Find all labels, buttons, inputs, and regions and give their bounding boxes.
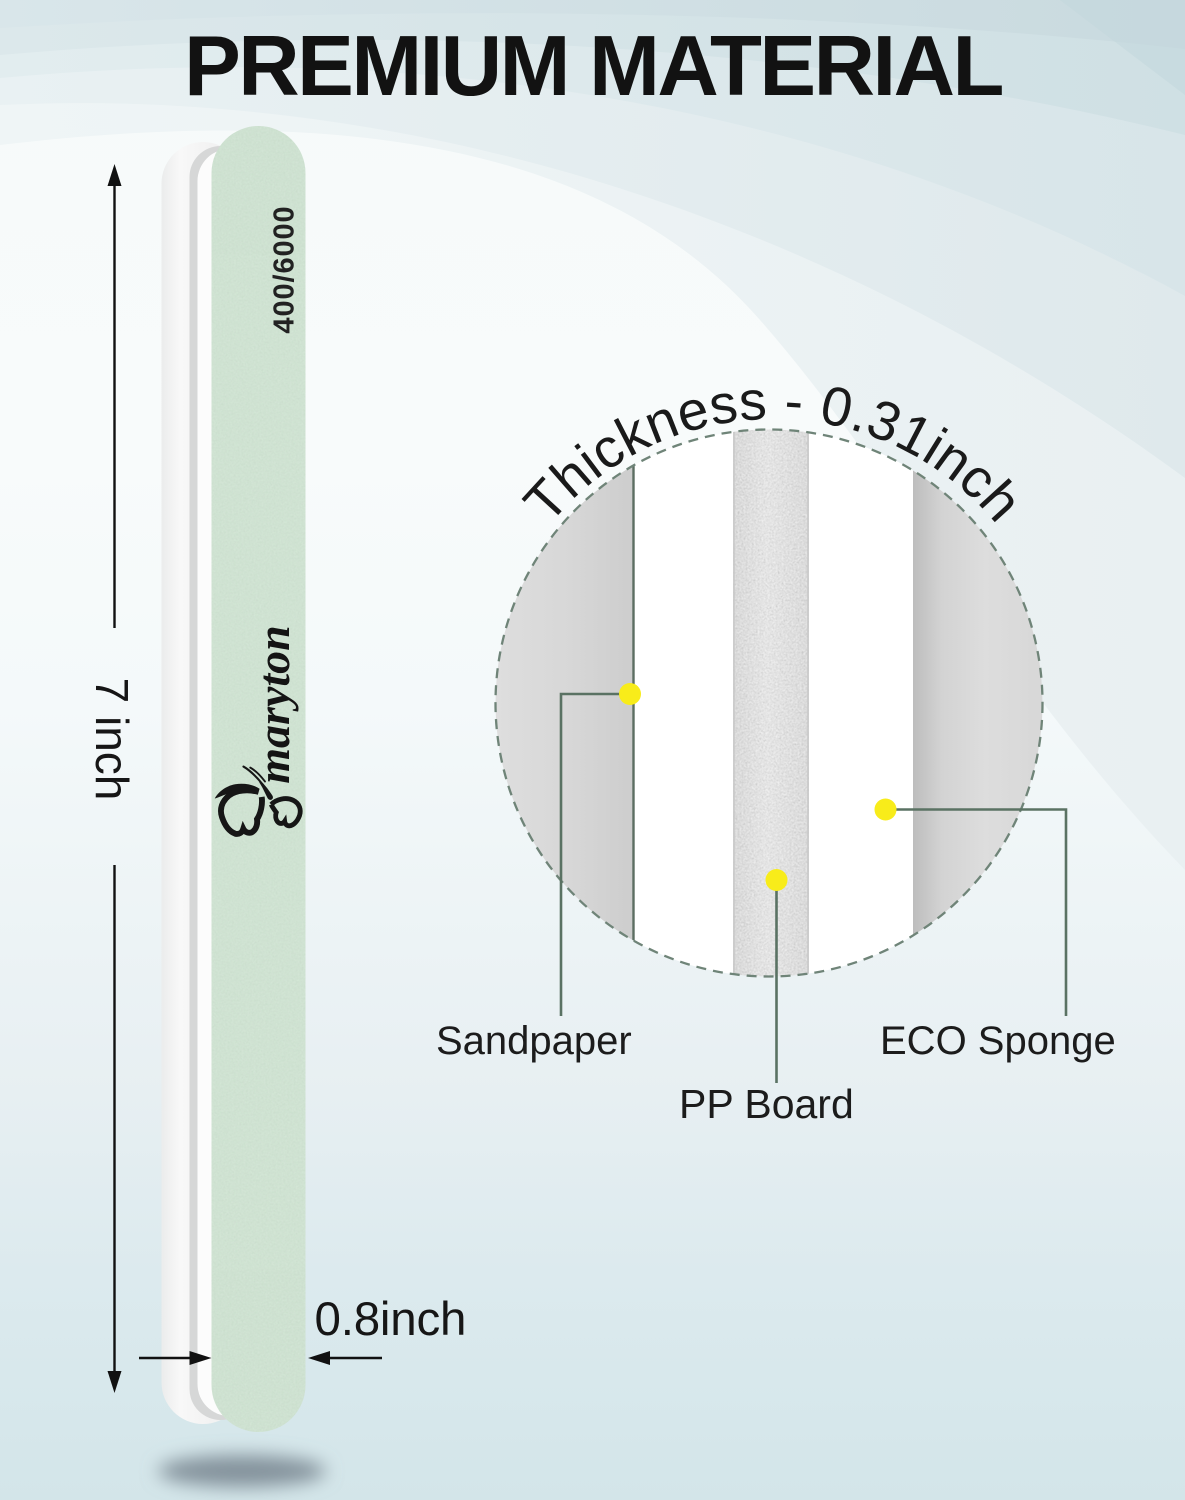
svg-text:maryton: maryton — [248, 625, 299, 783]
svg-text:7 inch: 7 inch — [86, 678, 138, 801]
svg-text:0.8inch: 0.8inch — [315, 1293, 467, 1346]
svg-text:PP Board: PP Board — [679, 1081, 854, 1127]
svg-text:ECO Sponge: ECO Sponge — [880, 1019, 1116, 1063]
svg-text:PREMIUM MATERIAL: PREMIUM MATERIAL — [184, 19, 1002, 114]
svg-text:Sandpaper: Sandpaper — [436, 1019, 632, 1063]
svg-text:400/6000: 400/6000 — [269, 205, 301, 333]
